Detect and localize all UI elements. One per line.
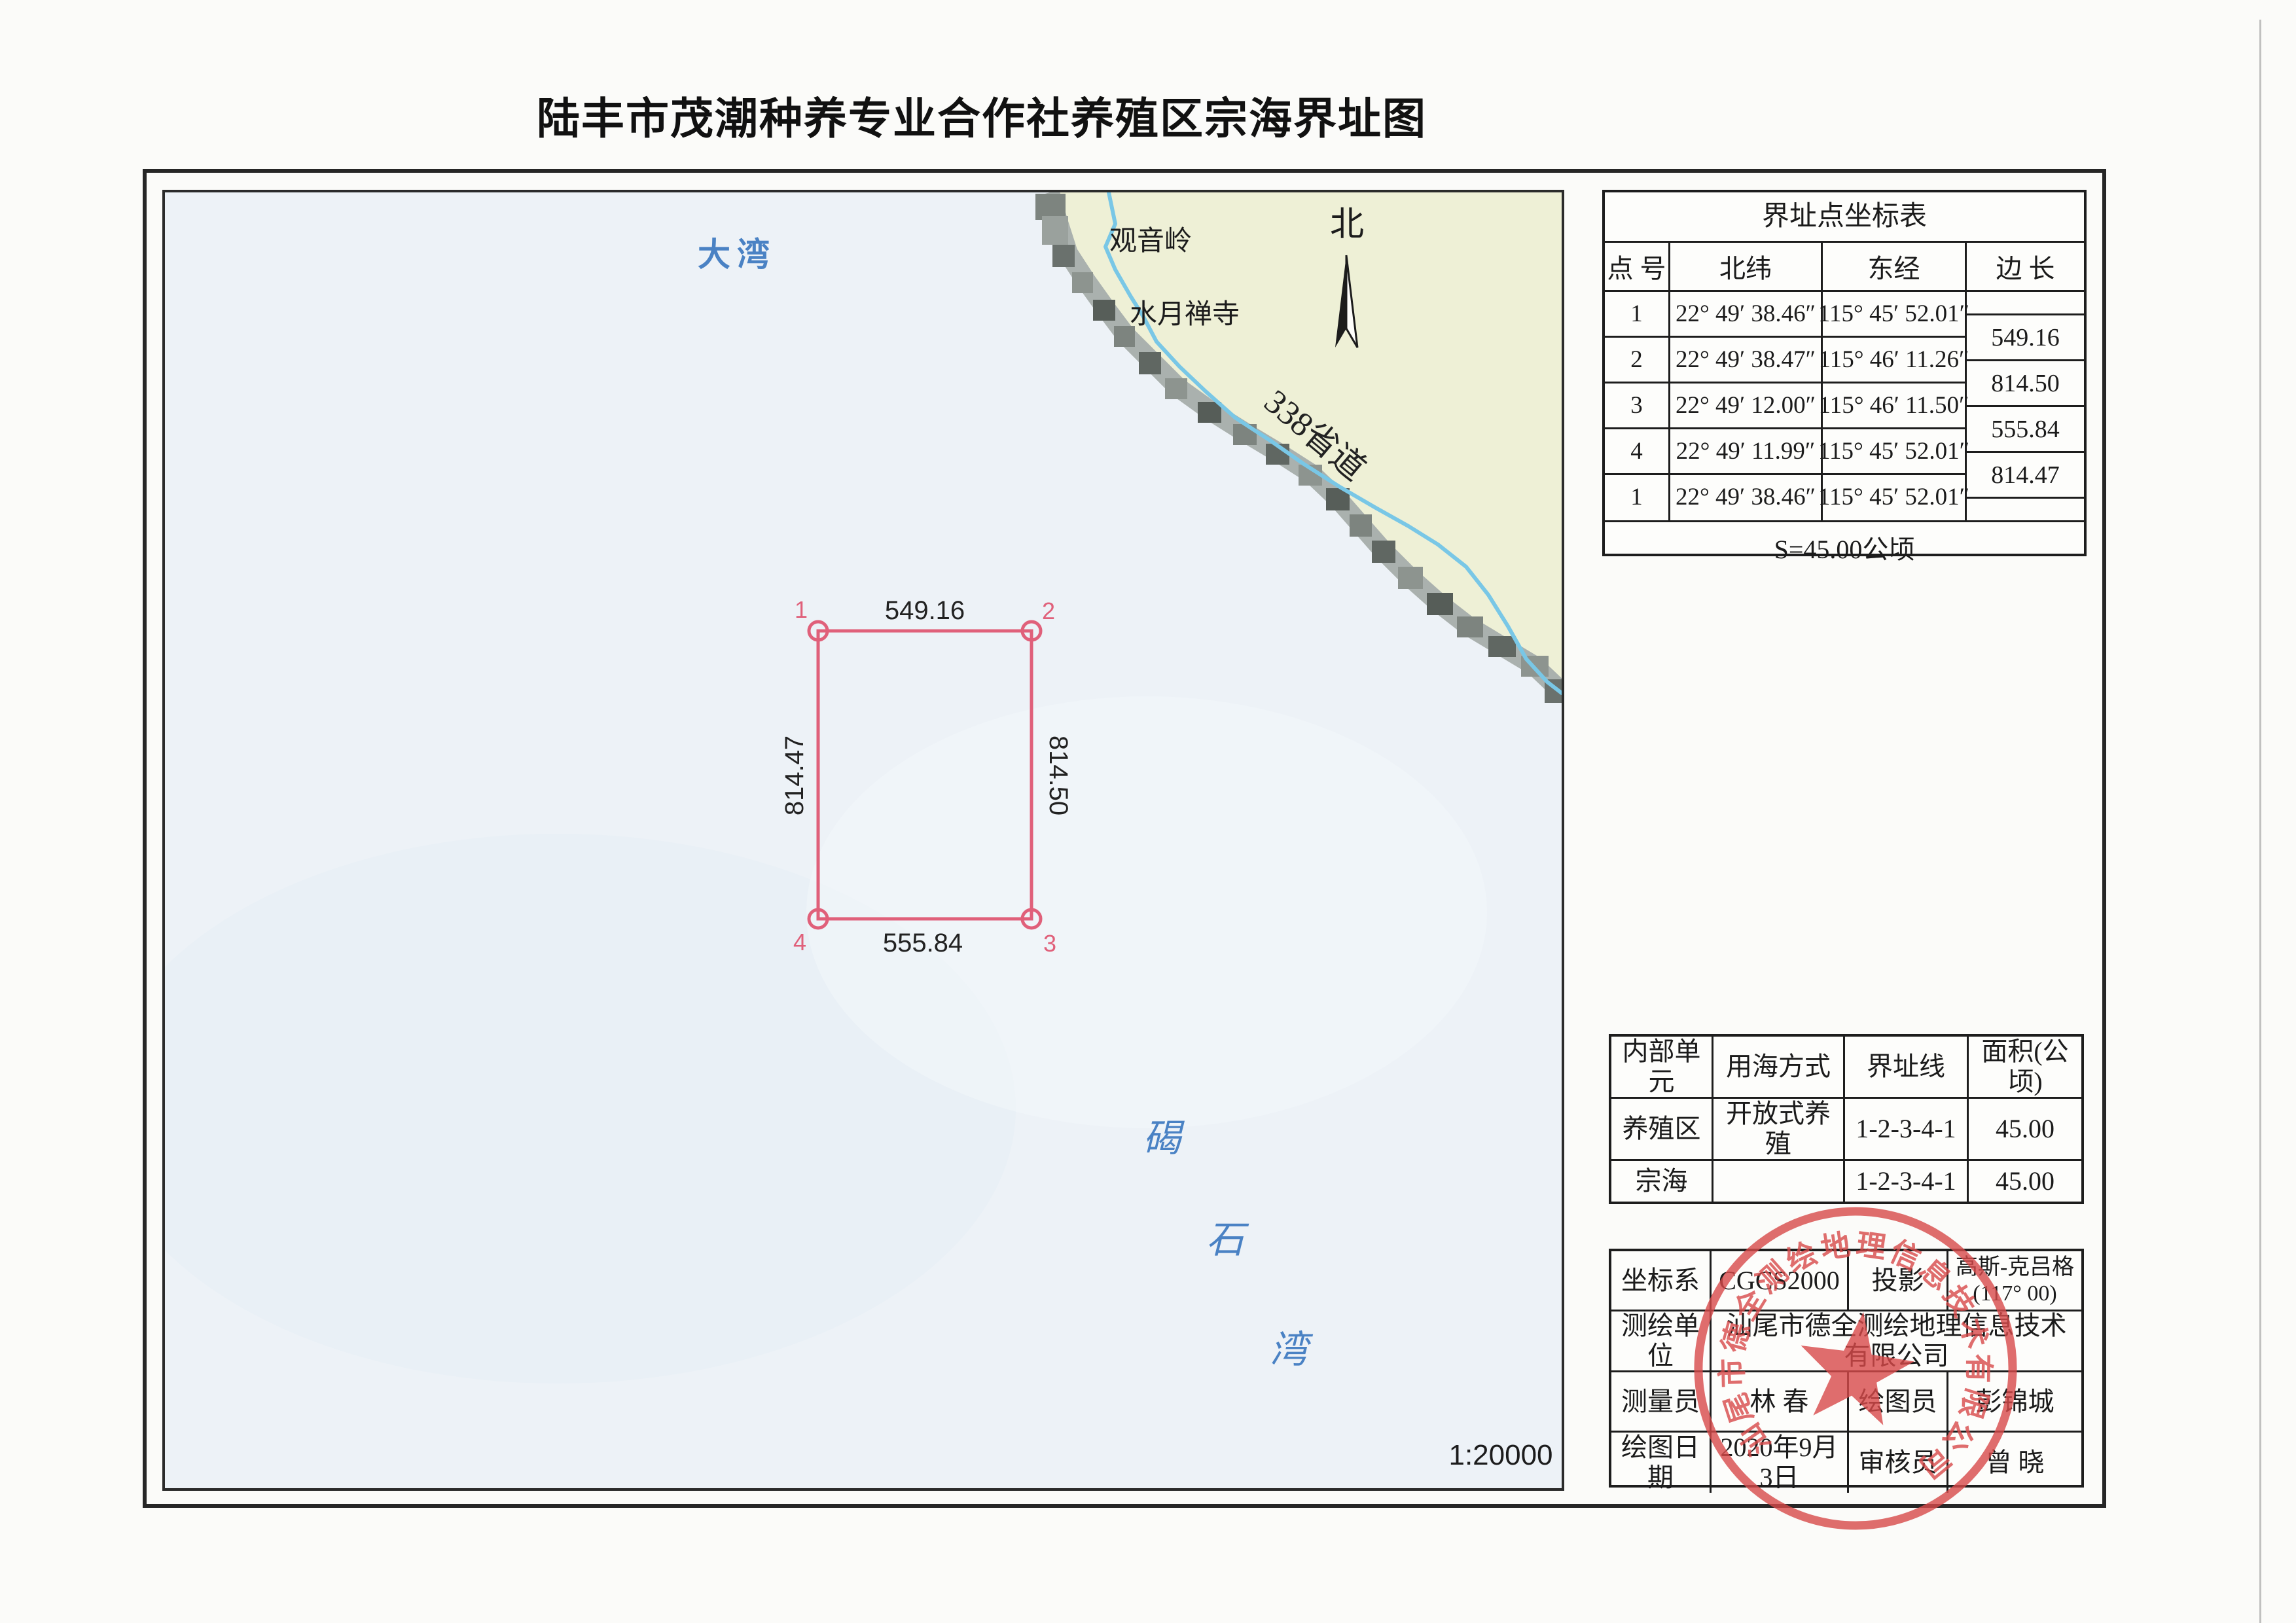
sea-use-table: 内部单元 用海方式 界址线 面积(公顷) 养殖区 开放式养殖 1-2-3-4-1… xyxy=(1609,1034,2084,1204)
cell-unit: 养殖区 xyxy=(1611,1097,1712,1159)
label-draw-date: 绘图日期 xyxy=(1611,1431,1710,1493)
cell-use-mode xyxy=(1712,1159,1843,1202)
cell-boundary-line: 1-2-3-4-1 xyxy=(1843,1159,1967,1202)
cell-no: 3 xyxy=(1605,382,1668,427)
dim-left: 814.47 xyxy=(780,736,809,815)
cell-use-mode: 开放式养殖 xyxy=(1712,1097,1843,1159)
bay-label: 碣 石 湾 xyxy=(1143,1117,1314,1371)
cell-side-empty xyxy=(1967,290,2084,313)
map-panel: 大湾 观音岭 水月禅寺 338省道 碣 石 湾 1:20000 北 xyxy=(162,190,1564,1491)
value-drafter: 彭锦城 xyxy=(1946,1370,2081,1431)
coord-table-title: 界址点坐标表 xyxy=(1605,192,2084,241)
cell-side: 814.47 xyxy=(1967,451,2084,497)
bay-char: 湾 xyxy=(1270,1329,1314,1371)
cell-side-empty xyxy=(1967,497,2084,520)
header-boundary-line: 界址线 xyxy=(1843,1037,1967,1097)
header-use-mode: 用海方式 xyxy=(1712,1037,1843,1097)
dim-bottom: 555.84 xyxy=(883,929,963,957)
header-latitude: 北纬 xyxy=(1670,243,1821,290)
cell-no: 1 xyxy=(1605,290,1668,336)
map-canvas: 大湾 观音岭 水月禅寺 338省道 碣 石 湾 1:20000 北 xyxy=(165,192,1562,1488)
cell-boundary-line: 1-2-3-4-1 xyxy=(1843,1097,1967,1159)
value-reviewer: 曾 晓 xyxy=(1946,1431,2081,1493)
temple-label: 水月禅寺 xyxy=(1130,300,1240,330)
dim-top: 549.16 xyxy=(885,596,965,625)
value-surveyor: 林 春 xyxy=(1710,1370,1847,1431)
col-longitude: 东经 115° 45′ 52.01″ 115° 46′ 11.26″ 115° … xyxy=(1821,243,1965,520)
coord-table-grid: 点 号 1 2 3 4 1 北纬 22° 49′ 38.46″ 22° 49′ … xyxy=(1605,241,2084,522)
cell-area: 45.00 xyxy=(1967,1097,2081,1159)
header-side-length: 边 长 xyxy=(1967,243,2084,290)
scale-label: 1:20000 xyxy=(1448,1439,1552,1471)
header-area: 面积(公顷) xyxy=(1967,1037,2081,1097)
label-surveyor: 测量员 xyxy=(1611,1370,1710,1431)
label-coord-sys: 坐标系 xyxy=(1611,1251,1710,1310)
cell-lon: 115° 45′ 52.01″ xyxy=(1823,473,1965,519)
document-page: 陆丰市茂潮种养专业合作社养殖区宗海界址图 xyxy=(0,0,2296,1623)
sea-label: 大湾 xyxy=(698,236,776,273)
cell-lon: 115° 45′ 52.01″ xyxy=(1823,427,1965,473)
cell-unit: 宗海 xyxy=(1611,1159,1712,1202)
corner-1-label: 1 xyxy=(795,596,808,623)
mountain-label: 观音岭 xyxy=(1109,226,1192,257)
cell-lat: 22° 49′ 12.00″ xyxy=(1670,382,1821,427)
label-projection: 投影 xyxy=(1847,1251,1946,1310)
col-point-no: 点 号 1 2 3 4 1 xyxy=(1605,243,1668,520)
cell-side: 814.50 xyxy=(1967,359,2084,405)
col-side-length: 边 长 549.16 814.50 555.84 814.47 xyxy=(1965,243,2084,520)
bay-char: 碣 xyxy=(1143,1117,1185,1160)
cell-lat: 22° 49′ 11.99″ xyxy=(1670,427,1821,473)
cell-no: 1 xyxy=(1605,473,1668,519)
label-drafter: 绘图员 xyxy=(1847,1370,1946,1431)
value-survey-org: 汕尾市德全测绘地理信息技术有限公司 xyxy=(1710,1310,2081,1370)
cell-no: 2 xyxy=(1605,336,1668,382)
dim-right: 814.50 xyxy=(1044,736,1073,815)
cell-lat: 22° 49′ 38.46″ xyxy=(1670,473,1821,519)
north-label: 北 xyxy=(1330,206,1364,243)
page-title: 陆丰市茂潮种养专业合作社养殖区宗海界址图 xyxy=(0,84,1964,147)
corner-3-label: 3 xyxy=(1043,930,1056,957)
corner-2-label: 2 xyxy=(1042,597,1055,624)
cell-no: 4 xyxy=(1605,427,1668,473)
total-area-value: S=45.00公顷 xyxy=(1605,522,2084,572)
corner-4-label: 4 xyxy=(793,929,806,955)
survey-info-table: 坐标系 CGCS2000 投影 高斯-克吕格 (117° 00) 测绘单位 汕尾… xyxy=(1609,1249,2084,1488)
value-draw-date: 2020年9月3日 xyxy=(1710,1431,1847,1493)
header-longitude: 东经 xyxy=(1823,243,1965,290)
value-coord-sys: CGCS2000 xyxy=(1710,1251,1847,1310)
cell-lat: 22° 49′ 38.47″ xyxy=(1670,336,1821,382)
projection-line1: 高斯-克吕格 xyxy=(1956,1255,2074,1279)
cell-lat: 22° 49′ 38.46″ xyxy=(1670,290,1821,336)
value-projection: 高斯-克吕格 (117° 00) xyxy=(1946,1251,2081,1310)
label-survey-org: 测绘单位 xyxy=(1611,1310,1710,1370)
label-reviewer: 审核员 xyxy=(1847,1431,1946,1493)
col-latitude: 北纬 22° 49′ 38.46″ 22° 49′ 38.47″ 22° 49′… xyxy=(1668,243,1821,520)
cell-side: 555.84 xyxy=(1967,405,2084,451)
cell-lon: 115° 46′ 11.26″ xyxy=(1823,336,1965,382)
projection-line2: (117° 00) xyxy=(1973,1281,2056,1306)
cell-area: 45.00 xyxy=(1967,1159,2081,1202)
header-point-no: 点 号 xyxy=(1605,243,1668,290)
bay-char: 石 xyxy=(1206,1219,1249,1261)
boundary-point-table: 界址点坐标表 点 号 1 2 3 4 1 北纬 22° 49′ 38.46″ 2… xyxy=(1602,190,2087,556)
cell-lon: 115° 46′ 11.50″ xyxy=(1823,382,1965,427)
sea-tint xyxy=(806,696,1487,1128)
cell-lon: 115° 45′ 52.01″ xyxy=(1823,290,1965,336)
cell-side: 549.16 xyxy=(1967,313,2084,359)
header-inner-unit: 内部单元 xyxy=(1611,1037,1712,1097)
scan-page-edge xyxy=(2259,20,2261,1623)
